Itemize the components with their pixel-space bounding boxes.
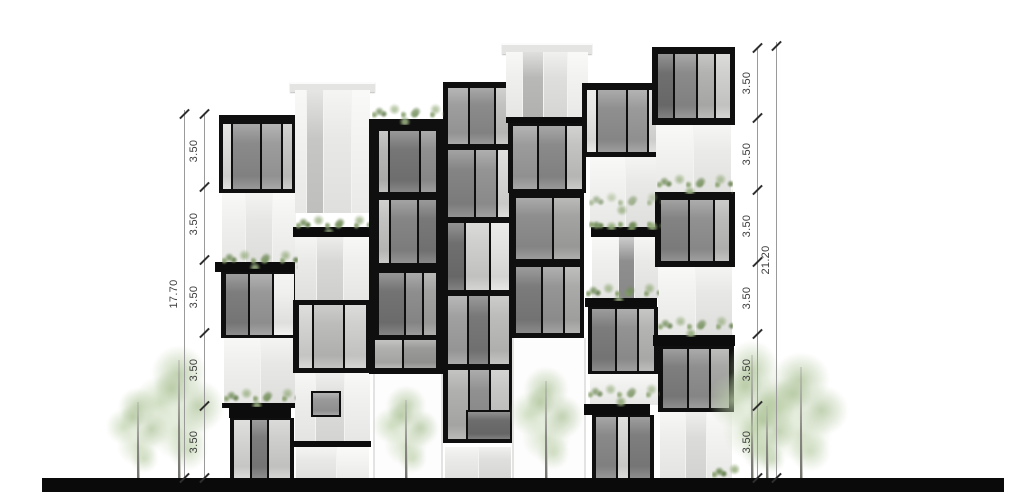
dimension-line (184, 110, 185, 478)
facade-panel (543, 267, 562, 333)
balcony-plants (657, 167, 733, 194)
facade-panel (379, 200, 389, 263)
building-module (295, 237, 370, 300)
facade-panel (661, 200, 688, 261)
glass-unit (379, 131, 436, 192)
facade-panel (419, 200, 436, 263)
facade-panel (469, 296, 488, 364)
facade-panel (448, 223, 464, 290)
building-module (369, 119, 445, 197)
facade-panel (587, 90, 596, 152)
ground-line (42, 478, 1004, 492)
glass-unit (661, 200, 729, 261)
facade-panel (630, 417, 650, 478)
facade-panel (716, 54, 730, 118)
facade-panel (567, 126, 582, 189)
glass-unit (448, 88, 509, 144)
facade-panel (490, 296, 509, 364)
building-module (655, 192, 735, 267)
facade-panel (598, 90, 626, 152)
building-module (369, 340, 445, 374)
facade-panel (506, 52, 522, 117)
glass-unit (513, 126, 582, 189)
balcony-plants (589, 185, 661, 230)
dimension-label: 21.20 (759, 230, 773, 290)
glass-unit (375, 340, 436, 368)
dimension-label: 3.50 (187, 194, 201, 254)
building-module (508, 123, 586, 193)
glass-unit (448, 150, 509, 217)
glass-unit (596, 417, 650, 478)
dimension-label: 3.50 (740, 412, 754, 472)
building-module (443, 82, 513, 147)
facade-panel (345, 373, 370, 441)
facade-panel (274, 274, 294, 335)
facade-panel (658, 54, 673, 118)
facade-panel (513, 126, 537, 189)
building-module (230, 418, 294, 478)
dimension-label: 3.50 (740, 124, 754, 184)
facade-panel (337, 447, 369, 478)
dimension-label: 3.50 (187, 340, 201, 400)
facade-panel (252, 420, 268, 478)
facade-panel (406, 273, 423, 335)
facade-panel (295, 237, 316, 300)
glass-unit (448, 296, 509, 364)
balcony-plants (588, 377, 660, 407)
facade-panel (448, 88, 468, 144)
facade-panel (295, 90, 306, 213)
glass-unit (587, 90, 658, 152)
glass-unit (379, 200, 436, 263)
balcony-plants (372, 97, 444, 125)
facade-panel (660, 412, 685, 478)
facade-panel (445, 447, 478, 478)
facade-panel (313, 393, 339, 415)
glass-unit (516, 267, 580, 333)
glass-unit (379, 273, 436, 335)
facade-panel (618, 417, 628, 478)
facade-panel (554, 198, 580, 259)
dimension-label: 17.70 (167, 264, 181, 324)
facade-panel (715, 200, 729, 261)
building-module (588, 307, 658, 374)
facade-panel (523, 52, 543, 117)
building-module (443, 147, 513, 220)
facade-panel (262, 124, 281, 189)
facade-panel (663, 349, 687, 408)
dimension-label: 3.50 (740, 196, 754, 256)
facade-panel (233, 124, 260, 189)
facade-panel (317, 237, 343, 300)
balcony-plants (586, 276, 659, 301)
facade-panel (628, 90, 647, 152)
facade-panel (375, 340, 402, 368)
facade-panel (283, 124, 292, 189)
building-module (443, 220, 513, 293)
facade-panel (424, 273, 436, 335)
facade-panel (516, 267, 541, 333)
facade-panel (479, 447, 512, 478)
facade-panel (544, 52, 567, 117)
building-module (221, 272, 298, 338)
balcony-plants (222, 243, 298, 269)
facade-panel (448, 370, 468, 439)
glass-unit (299, 305, 366, 368)
building-module (510, 193, 584, 263)
balcony-plants (296, 208, 369, 232)
balcony-plants (224, 381, 296, 407)
facade-panel (269, 420, 290, 478)
facade-panel (234, 420, 250, 478)
facade-panel (299, 305, 312, 368)
elevation-drawing: 3.503.503.503.503.5017.703.503.503.503.5… (0, 0, 1024, 493)
building-module (311, 391, 341, 417)
facade-panel (352, 90, 370, 213)
facade-panel (391, 200, 417, 263)
building-module (293, 300, 371, 373)
facade-panel (592, 309, 615, 371)
facade-panel (223, 124, 231, 189)
dimension-label: 3.50 (740, 340, 754, 400)
facade-panel (250, 274, 272, 335)
facade-panel (698, 54, 715, 118)
building-module (295, 90, 370, 213)
facade-panel (314, 305, 343, 368)
facade-panel (345, 305, 366, 368)
building-module (652, 47, 735, 125)
facade-panel (296, 447, 336, 478)
building-module (443, 293, 513, 367)
glass-unit (516, 198, 580, 259)
dimension-line (776, 42, 777, 478)
glass-unit (592, 309, 654, 371)
facade-panel (516, 198, 552, 259)
facade-panel (404, 340, 436, 368)
facade-panel (596, 417, 616, 478)
dimension-label: 3.50 (187, 267, 201, 327)
building-module (582, 83, 662, 157)
facade-panel (448, 150, 474, 217)
facade-panel (476, 150, 496, 217)
facade-panel (690, 200, 713, 261)
facade-panel (468, 412, 510, 439)
glass-unit (658, 54, 730, 118)
facade-panel (466, 223, 490, 290)
glass-unit (226, 274, 294, 335)
dimension-label: 3.50 (740, 53, 754, 113)
glass-unit (313, 393, 339, 415)
dimension-label: 3.50 (187, 121, 201, 181)
facade-panel (390, 131, 419, 192)
glass-unit (234, 420, 290, 478)
facade-panel (379, 131, 388, 192)
facade-panel (421, 131, 436, 192)
building-module (506, 52, 588, 117)
glass-unit (223, 124, 292, 189)
facade-panel (307, 90, 323, 213)
building-module (369, 267, 445, 340)
facade-panel (675, 54, 695, 118)
facade-panel (470, 88, 494, 144)
glass-unit (448, 223, 509, 290)
facade-panel (565, 267, 580, 333)
facade-panel (226, 274, 248, 335)
balcony-slab (229, 408, 291, 418)
dimension-label: 3.50 (740, 268, 754, 328)
building-module (296, 447, 369, 478)
building-module (510, 263, 584, 338)
building-module (592, 415, 654, 478)
facade-panel (324, 90, 350, 213)
facade-panel (491, 223, 509, 290)
building-module (445, 447, 511, 478)
facade-panel (379, 273, 404, 335)
facade-panel (617, 309, 636, 371)
facade-panel (686, 412, 706, 478)
balcony-plants (658, 309, 733, 337)
facade-panel (539, 126, 565, 189)
building-module (369, 197, 445, 267)
building-module (219, 115, 299, 193)
building-module (466, 410, 512, 441)
glass-unit (468, 412, 510, 439)
dimension-label: 3.50 (187, 412, 201, 472)
facade-panel (689, 349, 709, 408)
dimension-line (204, 114, 205, 478)
facade-panel (639, 309, 654, 371)
facade-panel (344, 237, 370, 300)
facade-panel (448, 296, 467, 364)
